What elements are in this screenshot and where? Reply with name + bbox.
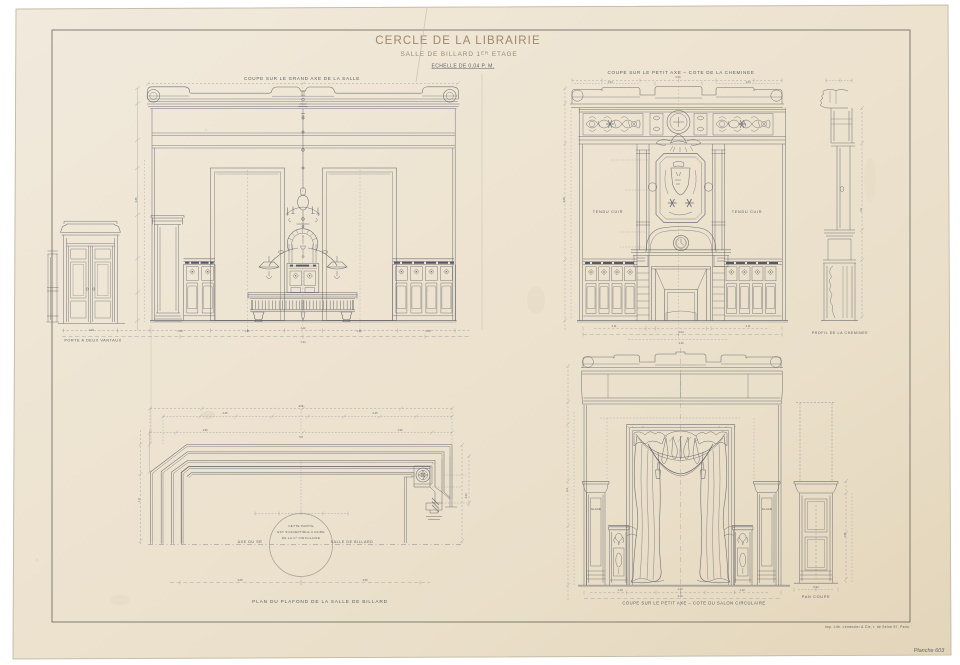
svg-text:1.40: 1.40 (356, 329, 362, 333)
svg-text:1.04: 1.04 (678, 330, 684, 334)
svg-text:Imp. Lith. Lemercier & Cie, r.: Imp. Lith. Lemercier & Cie, r. de Seine … (825, 625, 909, 629)
svg-text:PLAN DU PLAFOND DE LA: PLAN DU PLAFOND DE LA SALLE DE BILLARD (252, 599, 388, 605)
svg-text:1.10: 1.10 (617, 588, 623, 592)
svg-text:7.44: 7.44 (300, 340, 306, 344)
svg-text:PORTE A DEUX VANTAUX: PORTE A DEUX VANTAUX (64, 338, 121, 343)
svg-text:4.10: 4.10 (677, 594, 683, 598)
svg-text:EST SUSCEPTIBLE A FAIRE: EST SUSCEPTIBLE A FAIRE (277, 530, 324, 534)
svg-text:2.6: 2.6 (859, 208, 863, 212)
svg-text:COUPE SUR LE PETIT AXE – C: COUPE SUR LE PETIT AXE – COTE DE LA CHEM… (607, 70, 754, 75)
svg-text:CETTE PARTIE: CETTE PARTIE (288, 524, 314, 528)
svg-text:TENDU CUIR: TENDU CUIR (593, 210, 623, 214)
svg-text:PROFIL DE LA CHEMINEE: PROFIL DE LA CHEMINEE (812, 331, 869, 335)
svg-text:GLACE: GLACE (591, 507, 601, 511)
svg-text:5.8: 5.8 (299, 435, 303, 439)
svg-text:2.11: 2.11 (746, 324, 751, 328)
svg-text:1.22: 1.22 (677, 587, 683, 591)
svg-text:3.4: 3.4 (565, 488, 569, 492)
svg-text:2.45: 2.45 (372, 411, 378, 415)
svg-text:COUPE SUR LE GRAND AXE DE: COUPE SUR LE GRAND AXE DE LA SALLE (244, 76, 360, 81)
svg-text:PAN COUPE: PAN COUPE (802, 595, 830, 599)
svg-text:3.05: 3.05 (362, 578, 368, 582)
svg-text:SALLE DE BILLARD: SALLE DE BILLARD (331, 540, 374, 544)
svg-text:4.46: 4.46 (134, 197, 138, 203)
svg-text:Planche 603: Planche 603 (914, 648, 946, 654)
svg-text:DE LA C⁰ CIRCULAIRE: DE LA C⁰ CIRCULAIRE (282, 536, 320, 540)
svg-text:4.30: 4.30 (678, 341, 684, 345)
svg-text:COUPE SUR LE PETIT AXE – CO: COUPE SUR LE PETIT AXE – COTE DU SALON C… (622, 601, 765, 606)
svg-text:2.08: 2.08 (425, 329, 431, 333)
svg-text:SALLE DE BILLARD 1ER ETA: SALLE DE BILLARD 1ER ETAGE (400, 51, 517, 58)
svg-text:1.12: 1.12 (300, 326, 306, 330)
svg-text:ECHELLE DE 0,04 P. M.: ECHELLE DE 0,04 P. M. (431, 64, 494, 70)
svg-text:1.55: 1.55 (843, 532, 847, 538)
svg-text:TENDU CUIR: TENDU CUIR (732, 210, 762, 214)
svg-text:1.08: 1.08 (88, 328, 94, 332)
svg-text:1.04: 1.04 (745, 80, 751, 84)
svg-text:AXE DU SR: AXE DU SR (238, 540, 263, 544)
svg-text:4.46: 4.46 (562, 197, 566, 203)
svg-text:2.45: 2.45 (222, 411, 228, 415)
svg-text:0.96: 0.96 (675, 75, 681, 79)
svg-text:CERCLE DE LA LIBRAIRIE: CERCLE DE LA LIBRAIRIE (375, 35, 540, 47)
svg-text:2.08: 2.08 (177, 329, 183, 333)
svg-text:0.90: 0.90 (813, 585, 819, 589)
svg-text:1.90: 1.90 (397, 428, 403, 432)
svg-text:1.90: 1.90 (202, 428, 208, 432)
svg-text:3.05: 3.05 (237, 578, 243, 582)
svg-text:1.40: 1.40 (244, 329, 250, 333)
svg-text:1.6: 1.6 (137, 498, 141, 502)
svg-text:1.04: 1.04 (607, 80, 613, 84)
svg-text:GLACE: GLACE (762, 507, 772, 511)
svg-text:1.10: 1.10 (739, 588, 745, 592)
svg-text:AXE: AXE (298, 404, 303, 408)
svg-text:2.11: 2.11 (612, 324, 617, 328)
svg-text:4.30: 4.30 (464, 493, 468, 499)
